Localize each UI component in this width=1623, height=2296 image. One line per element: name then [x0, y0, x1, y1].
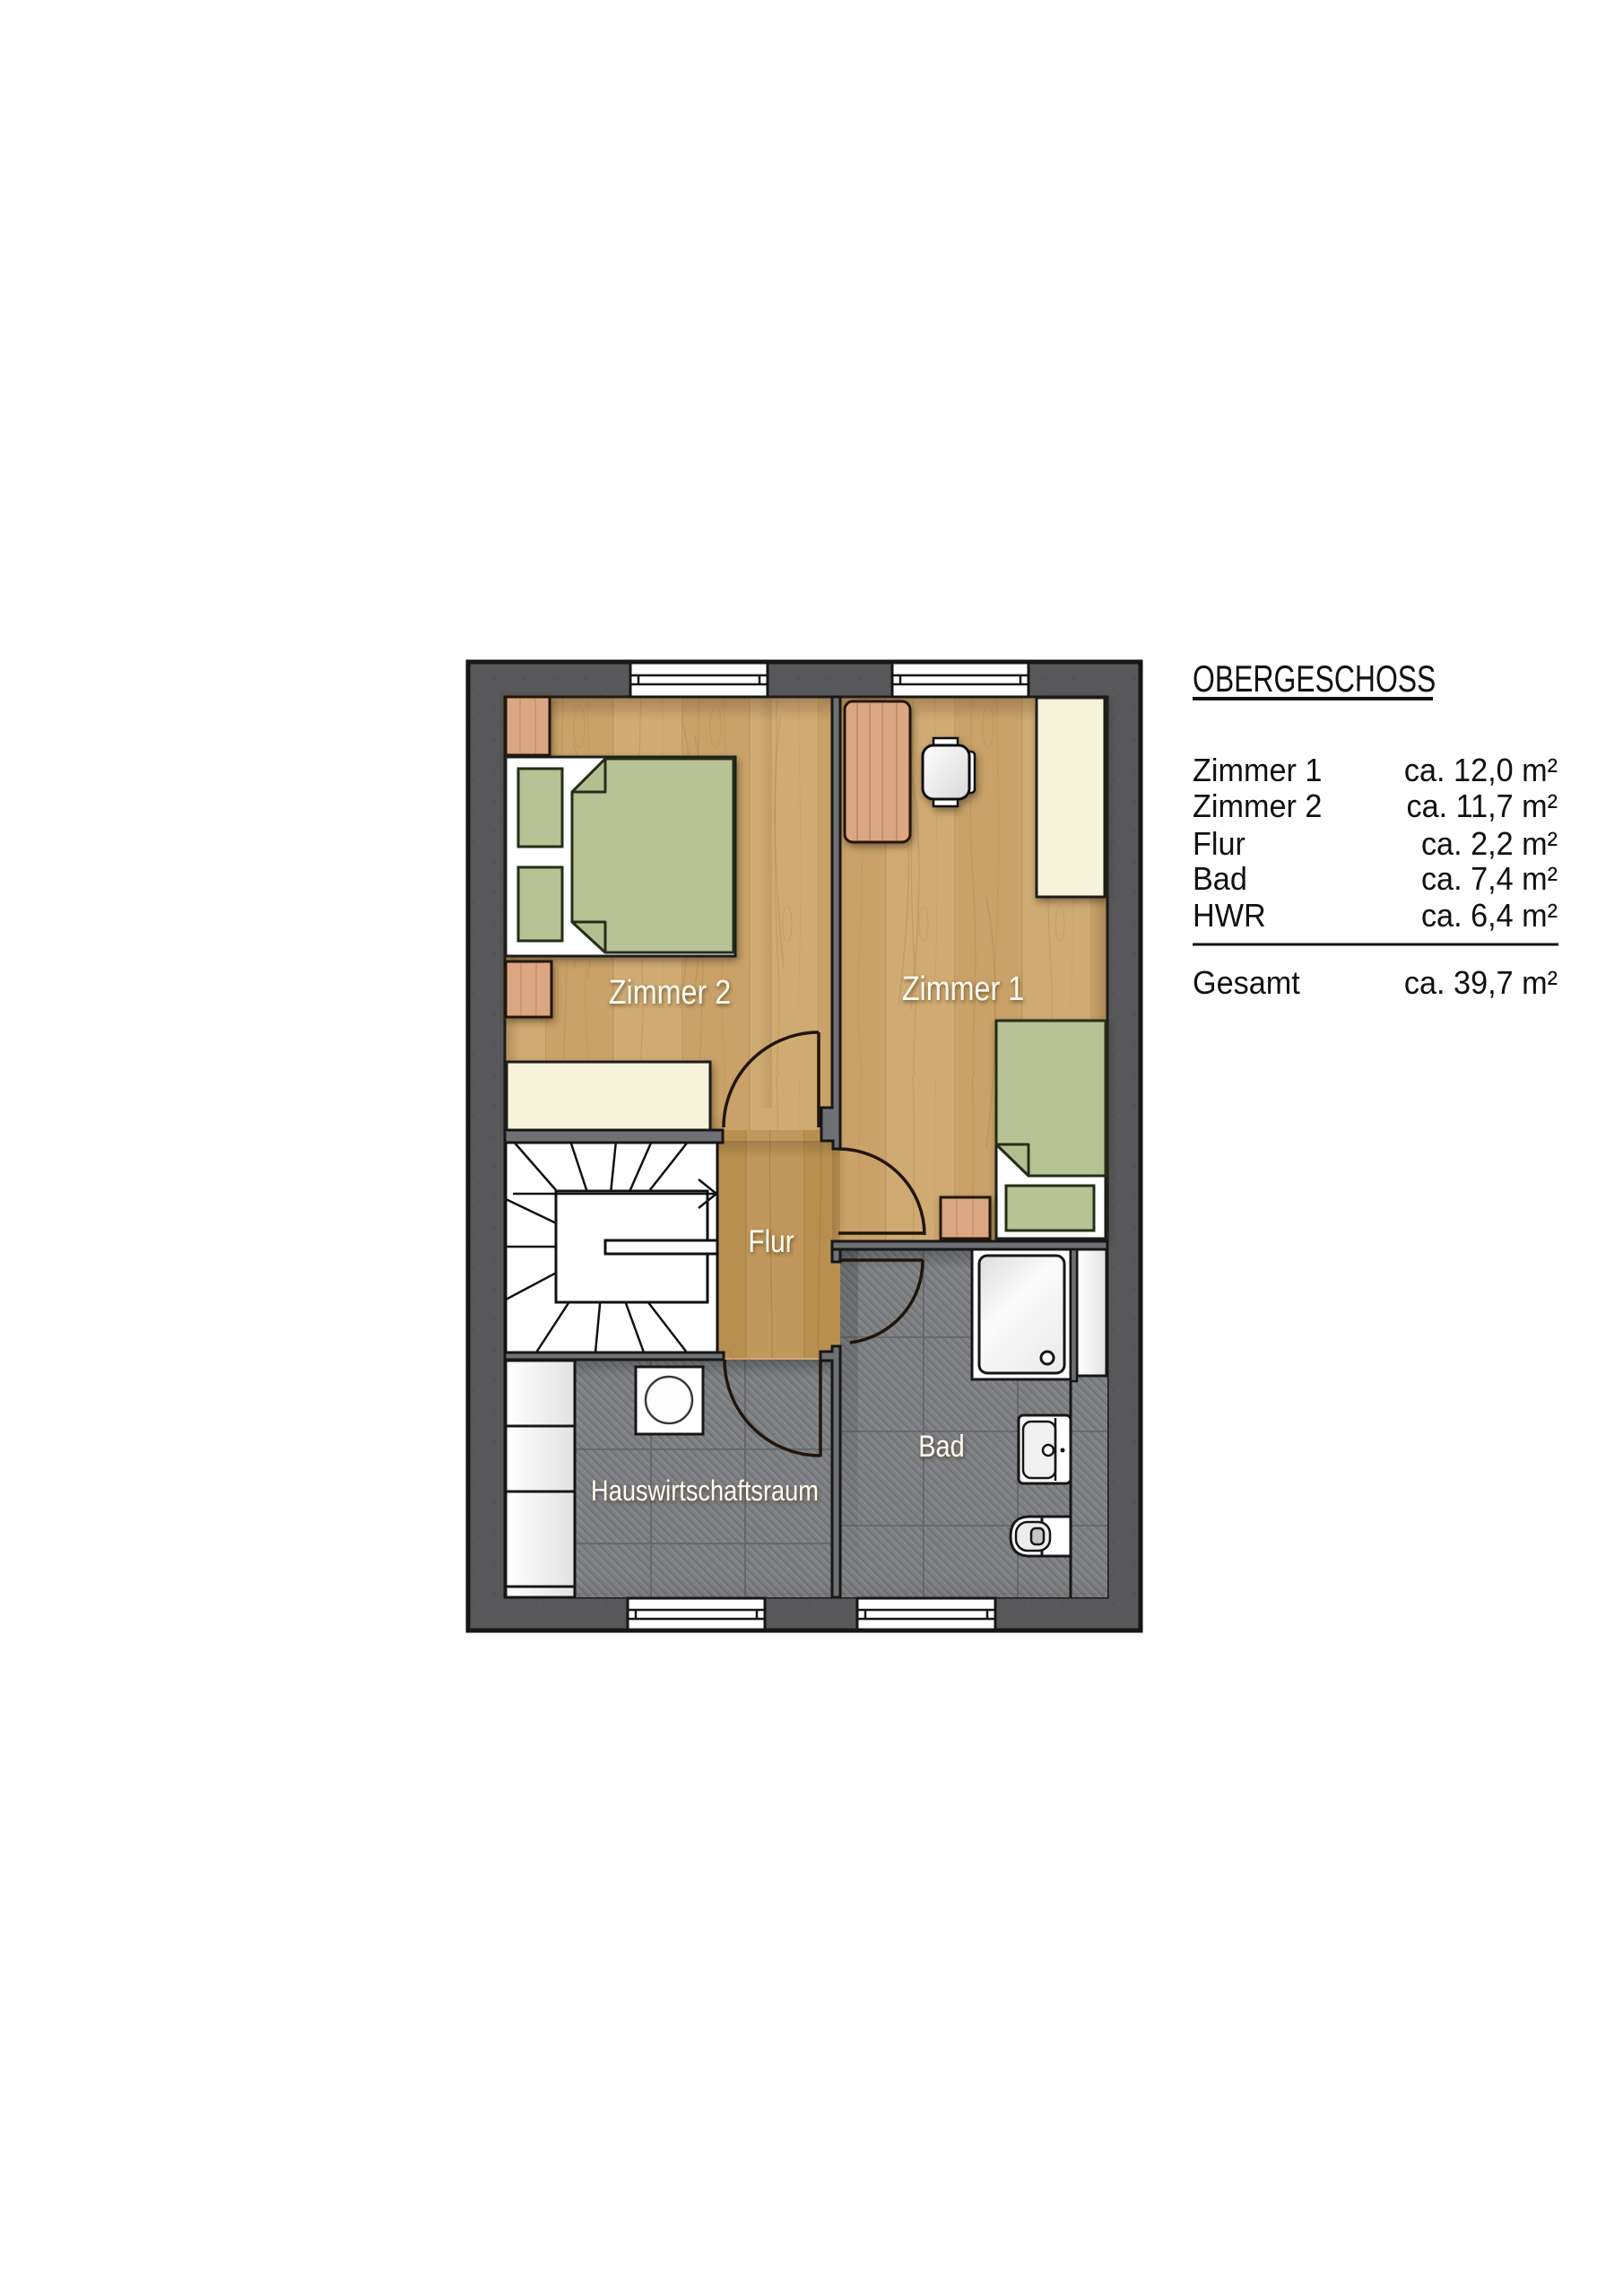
svg-text:OBERGESCHOSS: OBERGESCHOSS	[1193, 657, 1436, 700]
svg-text:Hauswirtschaftsraum: Hauswirtschaftsraum	[591, 1475, 819, 1508]
svg-text:ca. 12,0 m²: ca. 12,0 m²	[1404, 752, 1558, 788]
svg-text:ca. 6,4 m²: ca. 6,4 m²	[1421, 898, 1558, 934]
svg-text:Bad: Bad	[1193, 861, 1247, 897]
svg-text:ca. 7,4 m²: ca. 7,4 m²	[1421, 861, 1558, 897]
svg-text:ca. 2,2 m²: ca. 2,2 m²	[1421, 826, 1558, 862]
svg-text:Bad: Bad	[918, 1429, 964, 1464]
svg-text:Zimmer 1: Zimmer 1	[902, 970, 1024, 1008]
svg-text:Gesamt: Gesamt	[1193, 965, 1300, 1001]
svg-text:Flur: Flur	[1193, 826, 1245, 862]
svg-text:Zimmer 2: Zimmer 2	[609, 974, 731, 1012]
svg-text:ca. 39,7 m²: ca. 39,7 m²	[1404, 965, 1558, 1001]
svg-text:Zimmer 2: Zimmer 2	[1193, 788, 1322, 824]
svg-text:ca. 11,7 m²: ca. 11,7 m²	[1406, 788, 1558, 824]
svg-text:Zimmer 1: Zimmer 1	[1193, 752, 1322, 788]
svg-text:Flur: Flur	[748, 1224, 794, 1259]
svg-text:HWR: HWR	[1193, 898, 1266, 934]
